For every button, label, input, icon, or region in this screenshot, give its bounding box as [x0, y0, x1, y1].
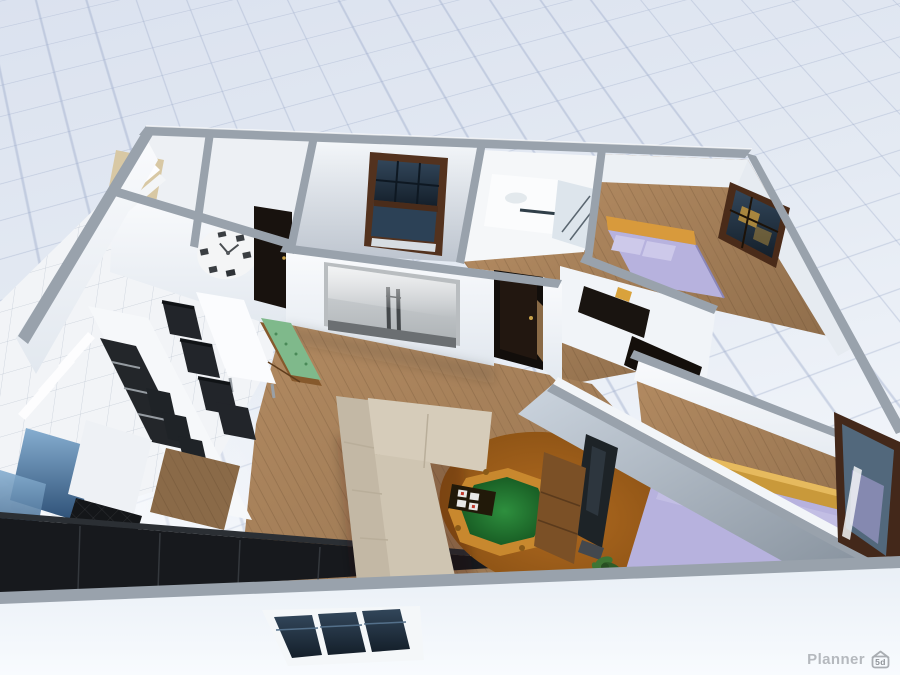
wall-right-of-door	[543, 277, 562, 386]
watermark[interactable]: Planner 5d	[807, 649, 892, 669]
front-window[interactable]	[262, 606, 424, 666]
watermark-brand: Planner	[807, 651, 865, 668]
planner5d-house-icon: 5d	[869, 649, 892, 669]
watermark-badge-text: 5d	[875, 657, 886, 667]
floor-plan	[0, 0, 900, 675]
sash-window[interactable]	[364, 152, 448, 256]
bedroom1-back-wall-face	[600, 154, 748, 188]
planner5d-render: Planner 5d	[0, 0, 900, 675]
wood-patch-planks	[150, 448, 240, 530]
